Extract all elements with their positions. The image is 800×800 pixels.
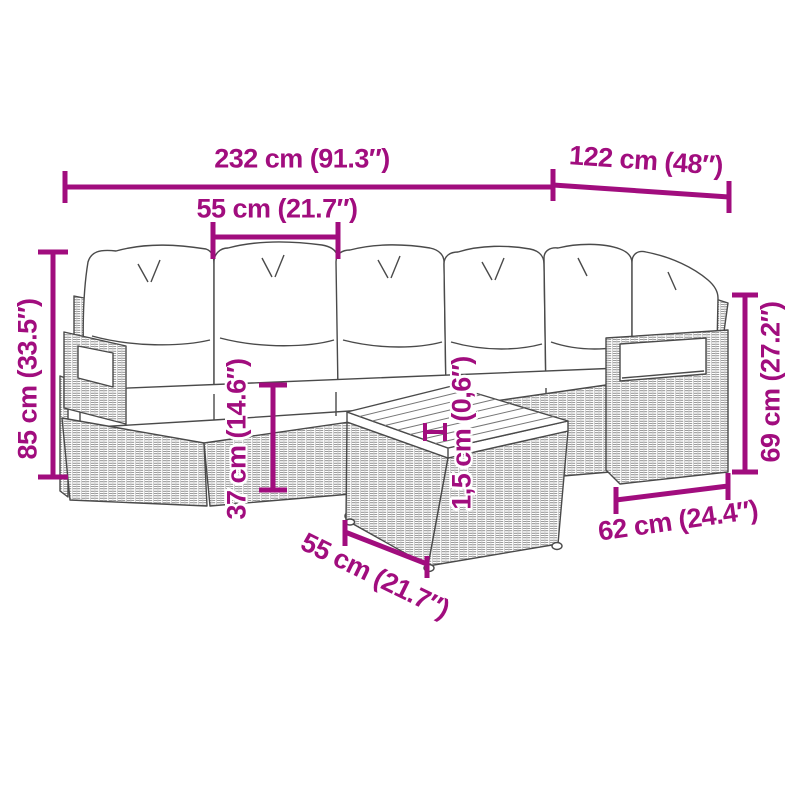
dim-line-armrest-height [732,295,758,472]
dim-line-right-section-width [553,181,729,213]
label-seat-width: 55 cm (21.7″) [196,194,357,225]
right-armrest [606,330,728,484]
table-foot [552,543,562,550]
label-armrest-height: 69 cm (27.2″) [756,301,787,462]
back-cushion [336,245,446,398]
label-tabletop-thickness: 1,5 cm (0,6″) [447,356,478,510]
label-total-width: 232 cm (91.3″) [214,144,390,175]
sofa-set-illustration [0,0,800,800]
label-total-height: 85 cm (33.5″) [13,298,44,459]
left-base-block [62,418,207,506]
product-dimension-diagram: 232 cm (91.3″) 122 cm (48″) 55 cm (21.7″… [0,0,800,800]
label-seat-height: 37 cm (14.6″) [222,358,253,519]
